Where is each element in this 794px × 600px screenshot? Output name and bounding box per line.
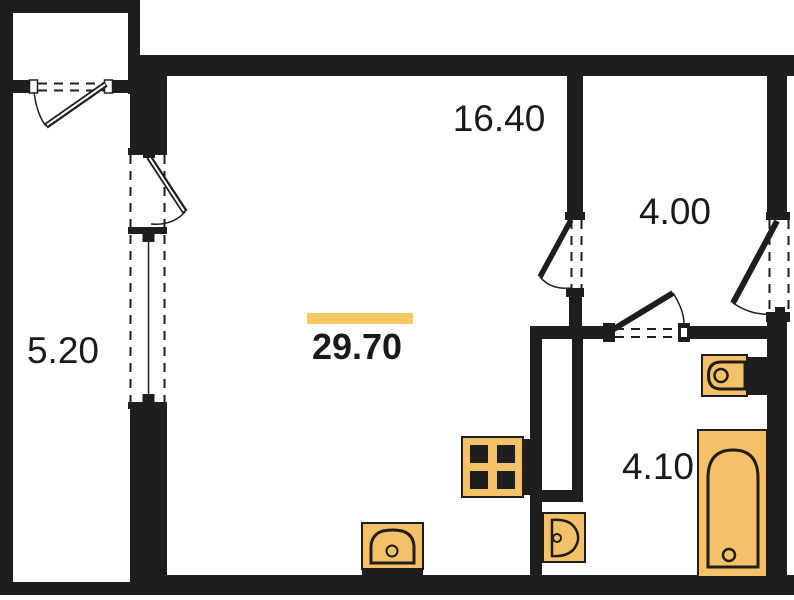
wall-segment <box>133 55 794 76</box>
window-frame-bar <box>128 402 167 409</box>
wall-segment <box>530 326 542 575</box>
wall-segment <box>0 0 140 13</box>
window-handle <box>143 394 155 402</box>
wall-segment <box>567 76 583 212</box>
door-jamb <box>30 80 38 93</box>
door-swing-arc <box>673 293 684 324</box>
door-living-hall <box>540 220 582 288</box>
door-swing-arc <box>733 303 768 314</box>
door-jamb-notch <box>681 328 687 337</box>
wall-segment <box>130 575 794 595</box>
wall-segment <box>0 80 30 93</box>
toilet-icon <box>702 355 767 396</box>
stove-burner <box>470 471 488 489</box>
door-entrance <box>733 220 789 314</box>
door-leaf <box>609 293 673 332</box>
room-area-label-balcony: 5.20 <box>27 330 99 371</box>
shaft-wall <box>530 490 583 502</box>
door-balcony <box>30 80 113 126</box>
room-area-label-living-room: 16.40 <box>453 98 546 139</box>
wall-segment <box>767 322 787 575</box>
floor-plan: 5.20 16.40 4.00 4.10 29.70 <box>0 0 794 600</box>
wall-segment <box>767 76 787 212</box>
wall-segment <box>690 326 787 339</box>
wall-segment <box>112 80 128 93</box>
window-casement-leaf-core <box>150 158 185 211</box>
window-frame-bar <box>128 227 167 234</box>
room-area-label-bathroom: 4.10 <box>622 446 694 487</box>
wall-segment <box>130 409 167 577</box>
floor-plan-page: 5.20 16.40 4.00 4.10 29.70 <box>0 0 794 600</box>
window-swing-arc <box>151 212 185 224</box>
stove-burner <box>470 445 488 463</box>
door-bathroom <box>609 293 684 337</box>
window-balcony <box>131 152 186 402</box>
stove-icon <box>462 437 531 497</box>
door-swing-arc <box>540 277 571 288</box>
shaft-wall <box>572 339 583 490</box>
door-jamb <box>766 312 790 322</box>
stove-burner <box>497 445 515 463</box>
window-handle <box>143 234 155 242</box>
door-jamb <box>565 212 585 220</box>
washbasin-icon <box>543 513 585 562</box>
wall-segment <box>0 582 133 595</box>
toilet-tank <box>746 357 767 395</box>
kitchen-sink-icon <box>362 523 423 577</box>
bathtub-icon <box>698 430 767 577</box>
door-leaf <box>540 220 571 277</box>
total-area-highlight-bar <box>307 313 413 324</box>
stove-burner <box>497 471 515 489</box>
door-swing-arc <box>34 92 46 126</box>
room-area-label-hallway: 4.00 <box>639 191 711 232</box>
door-jamb <box>566 288 584 297</box>
stove-counter-strip <box>523 439 531 495</box>
wall-segment <box>569 297 582 327</box>
total-area-label: 29.70 <box>312 326 402 367</box>
wall-segment <box>130 55 167 148</box>
door-jamb <box>766 212 790 220</box>
